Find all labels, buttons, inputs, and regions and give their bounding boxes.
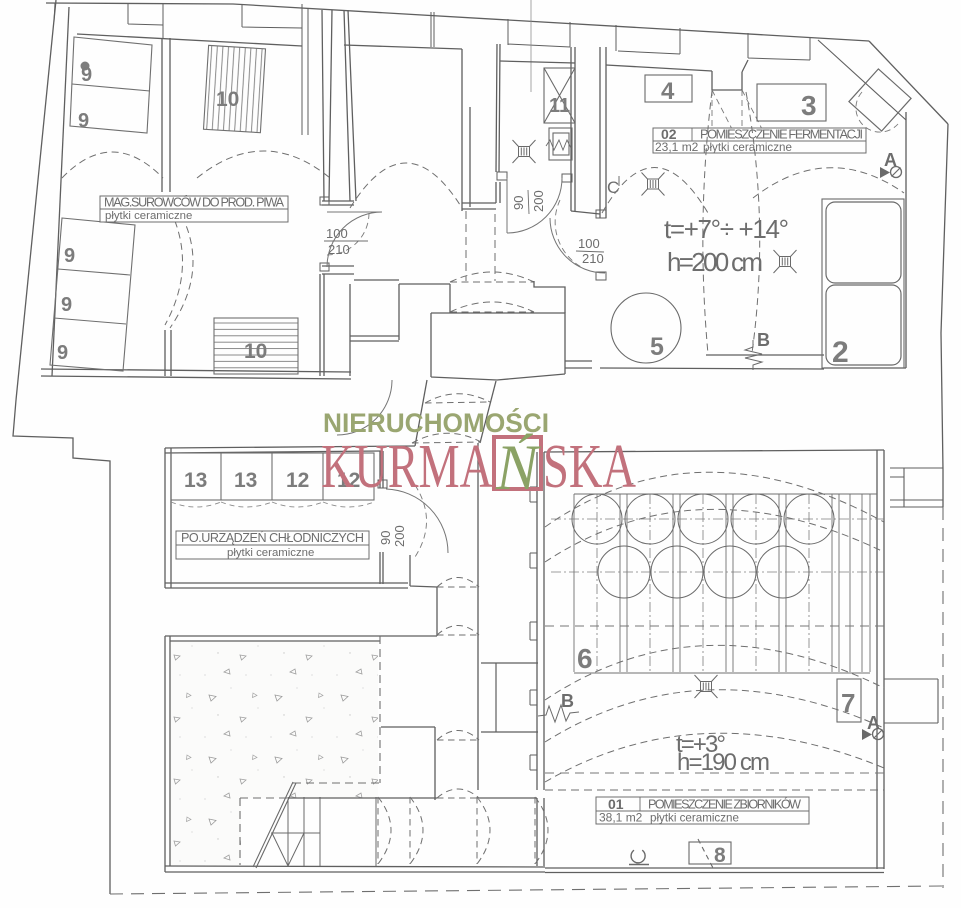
svg-text:9: 9 (57, 342, 68, 364)
svg-text:210: 210 (582, 251, 604, 266)
svg-text:h=190 cm: h=190 cm (677, 749, 770, 776)
svg-text:100: 100 (578, 236, 600, 251)
svg-text:t=+7°÷ +14°: t=+7°÷ +14° (664, 214, 789, 244)
svg-text:9: 9 (61, 294, 72, 316)
svg-text:B: B (757, 330, 770, 350)
svg-text:MAG.SUROWCÓW DO PROD. PIWA: MAG.SUROWCÓW DO PROD. PIWA (104, 195, 285, 210)
svg-text:200: 200 (392, 525, 407, 547)
svg-text:200: 200 (531, 190, 546, 212)
svg-text:4: 4 (661, 78, 675, 105)
svg-text:3: 3 (801, 90, 817, 121)
svg-text:11: 11 (549, 95, 570, 117)
svg-text:90: 90 (511, 196, 526, 210)
svg-text:SKA: SKA (543, 433, 636, 501)
svg-text:13: 13 (234, 469, 257, 492)
svg-text:C: C (607, 178, 619, 197)
svg-text:23,1 m2: 23,1 m2 (655, 140, 699, 154)
svg-text:13: 13 (184, 469, 207, 492)
svg-text:płytki ceramiczne: płytki ceramiczne (105, 210, 192, 222)
svg-text:210: 210 (328, 242, 350, 257)
svg-text:9: 9 (81, 64, 92, 86)
svg-text:90: 90 (378, 531, 393, 545)
svg-text:5: 5 (650, 333, 664, 361)
svg-text:POMIESZCZENIE FERMENTACJI: POMIESZCZENIE FERMENTACJI (700, 127, 863, 142)
svg-text:płytki ceramiczne: płytki ceramiczne (703, 141, 792, 154)
svg-text:12: 12 (286, 469, 309, 492)
svg-text:h=200 cm: h=200 cm (667, 247, 763, 277)
svg-text:B: B (561, 691, 574, 711)
svg-text:9: 9 (78, 110, 89, 132)
svg-text:8: 8 (714, 844, 726, 867)
svg-text:10: 10 (244, 340, 267, 363)
svg-text:100: 100 (326, 226, 348, 241)
svg-text:7: 7 (841, 688, 855, 718)
svg-text:płytki ceramiczne: płytki ceramiczne (227, 547, 314, 559)
svg-text:PO.URZĄDZEŃ CHŁODNICZYCH: PO.URZĄDZEŃ CHŁODNICZYCH (181, 530, 364, 545)
svg-text:9: 9 (64, 245, 75, 267)
svg-text:POMIESZCZENIE ZBIORNIKÓW: POMIESZCZENIE ZBIORNIKÓW (648, 797, 801, 812)
svg-text:Ń: Ń (495, 432, 541, 504)
svg-text:6: 6 (577, 643, 593, 674)
svg-text:płytki ceramiczne: płytki ceramiczne (650, 812, 739, 825)
svg-text:38,1 m2: 38,1 m2 (599, 811, 643, 825)
svg-text:10: 10 (216, 88, 239, 111)
svg-text:2: 2 (832, 336, 849, 369)
svg-text:KURMA: KURMA (321, 433, 493, 501)
